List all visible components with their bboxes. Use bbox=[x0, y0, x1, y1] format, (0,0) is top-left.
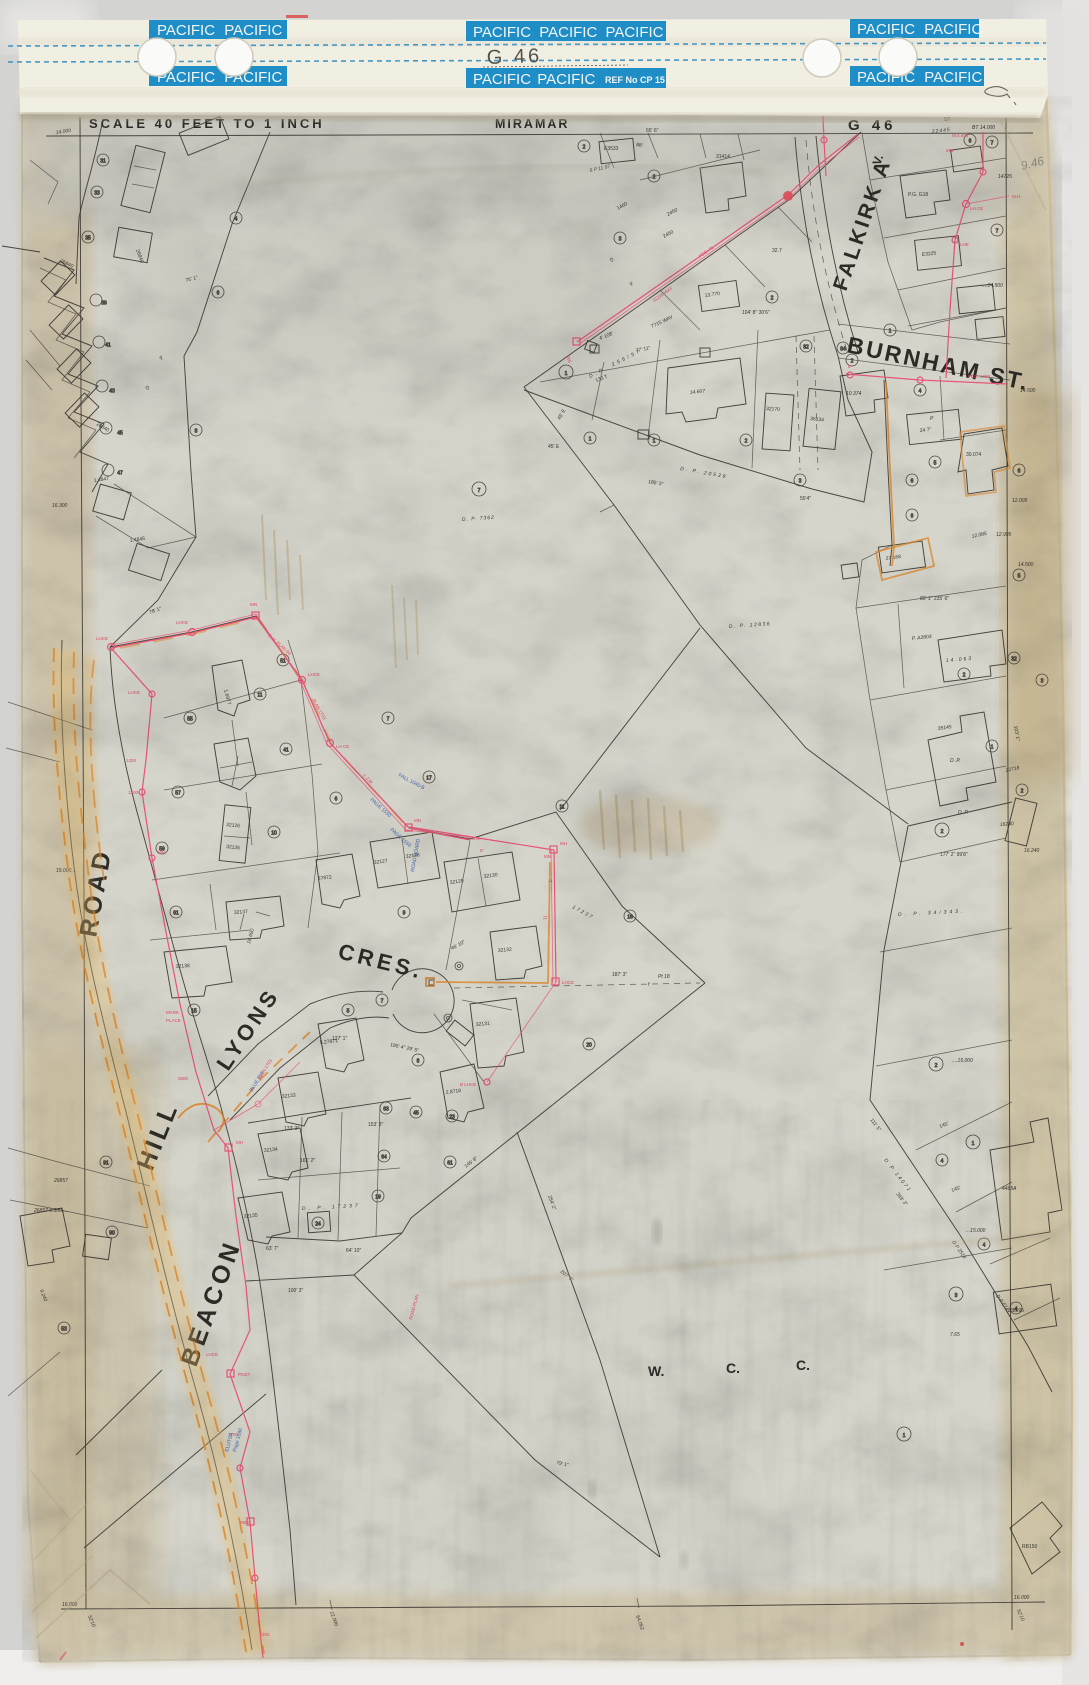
svg-text:G 46: G 46 bbox=[486, 45, 542, 69]
svg-text:PACIFIC PACIFIC PACIFIC: PACIFIC PACIFIC PACIFIC bbox=[473, 24, 664, 41]
svg-text:PACIFIC PACIFIC: PACIFIC PACIFIC bbox=[857, 21, 982, 38]
svg-text:PACIFIC PACIFIC: PACIFIC PACIFIC bbox=[157, 22, 282, 39]
svg-text:PACIFIC PACIFIC: PACIFIC PACIFIC bbox=[857, 69, 982, 86]
svg-text:PACIFIC PACIFIC: PACIFIC PACIFIC bbox=[473, 71, 595, 88]
svg-text:REF No CP 15: REF No CP 15 bbox=[605, 75, 665, 85]
svg-text:PACIFIC PACIFIC: PACIFIC PACIFIC bbox=[157, 69, 282, 86]
